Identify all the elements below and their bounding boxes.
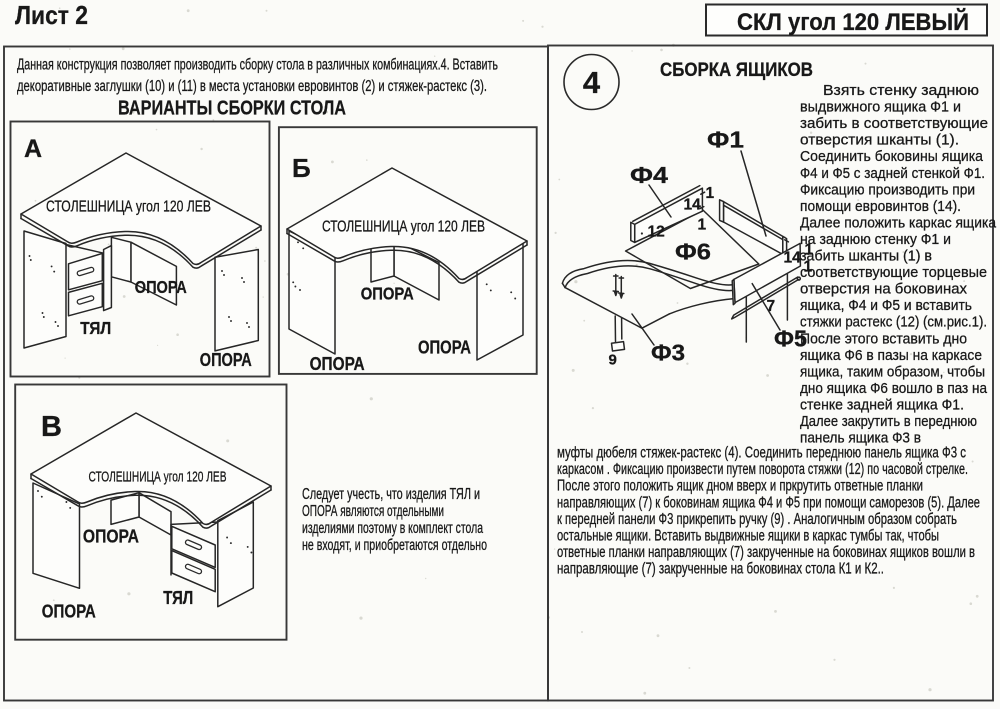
svg-text:выдвижного ящика Ф1 и: выдвижного ящика Ф1 и	[800, 99, 961, 116]
svg-text:муфты дюбеля стяжек-растекс (4: муфты дюбеля стяжек-растекс (4). Соедини…	[557, 445, 966, 462]
svg-text:СКЛ угол 120 ЛЕВЫЙ: СКЛ угол 120 ЛЕВЫЙ	[737, 8, 969, 36]
svg-text:ТЯЛ: ТЯЛ	[80, 318, 111, 338]
svg-text:ОПОРА: ОПОРА	[361, 284, 414, 304]
svg-text:соответствующие торцевые: соответствующие торцевые	[800, 264, 987, 281]
svg-text:направляющие (7) закрученные н: направляющие (7) закрученные на боковина…	[557, 561, 884, 578]
svg-text:Данная конструкция позволяет п: Данная конструкция позволяет производить…	[17, 57, 498, 74]
svg-text:14: 14	[684, 197, 702, 214]
svg-text:Далее закрутить в переднюю: Далее закрутить в переднюю	[800, 413, 977, 430]
svg-text:1: 1	[698, 217, 707, 234]
svg-text:ящика, таким образом, чтобы: ящика, таким образом, чтобы	[800, 363, 985, 380]
svg-text:Взять стенку заднюю: Взять стенку заднюю	[823, 82, 979, 99]
svg-text:СТОЛЕШНИЦА угол 120 ЛЕВ: СТОЛЕШНИЦА угол 120 ЛЕВ	[322, 219, 485, 236]
svg-text:ОПОРА: ОПОРА	[83, 527, 139, 547]
svg-text:После этого вставить дно: После этого вставить дно	[800, 330, 967, 347]
svg-text:изделиями поэтому в комплект с: изделиями поэтому в комплект стола	[302, 520, 483, 537]
svg-text:СТОЛЕШНИЦА угол 120 ЛЕВ: СТОЛЕШНИЦА угол 120 ЛЕВ	[46, 199, 211, 216]
svg-text:9: 9	[609, 352, 617, 369]
svg-text:4: 4	[583, 65, 601, 100]
svg-text:стяжки растекс (12) (см.рис.1): стяжки растекс (12) (см.рис.1).	[800, 314, 987, 331]
svg-text:Фиксацию производить при: Фиксацию производить при	[800, 181, 975, 198]
svg-text:ОПОРА: ОПОРА	[418, 338, 471, 358]
svg-text:ВАРИАНТЫ СБОРКИ СТОЛА: ВАРИАНТЫ СБОРКИ СТОЛА	[118, 97, 346, 120]
svg-text:забить шканты (1) в: забить шканты (1) в	[800, 248, 932, 265]
svg-text:Далее положить каркас ящика: Далее положить каркас ящика	[800, 214, 996, 231]
svg-text:14: 14	[784, 250, 802, 267]
svg-text:ОПОРА: ОПОРА	[135, 277, 187, 297]
svg-text:помощи евровинтов (14).: помощи евровинтов (14).	[800, 198, 961, 215]
svg-text:не входят, и приобретаются отд: не входят, и приобретаются отдельно	[302, 537, 487, 554]
svg-text:А: А	[24, 135, 42, 163]
svg-text:В: В	[41, 411, 62, 443]
svg-text:Б: Б	[292, 153, 311, 183]
svg-text:После этого положить ящик дном: После этого положить ящик дном вверх и п…	[557, 478, 923, 495]
svg-text:7: 7	[767, 298, 776, 315]
svg-text:ответные планки направляющих (: ответные планки направляющих (7) закруче…	[557, 544, 975, 561]
svg-text:ОПОРА являются отдельными: ОПОРА являются отдельными	[302, 503, 444, 520]
svg-text:Ф6: Ф6	[675, 239, 711, 265]
svg-text:стенке задней ящика Ф1.: стенке задней ящика Ф1.	[800, 396, 964, 413]
svg-text:Ф1: Ф1	[707, 127, 744, 153]
svg-text:декоративные заглушки (10) и: декоративные заглушки (10) и (11) в мест…	[17, 78, 487, 95]
svg-text:1: 1	[706, 185, 715, 202]
svg-text:к передней панели Ф3 прикрепит: к передней панели Ф3 прикрепить ручку (9…	[557, 511, 957, 528]
svg-text:отверстия на боковинах: отверстия на боковинах	[800, 281, 967, 298]
svg-text:на заднюю стенку Ф1 и: на заднюю стенку Ф1 и	[800, 231, 951, 248]
svg-text:Ф3: Ф3	[651, 340, 685, 366]
svg-text:отверстия шканты (1).: отверстия шканты (1).	[800, 132, 959, 149]
svg-text:ОПОРА: ОПОРА	[310, 354, 365, 374]
svg-text:СТОЛЕШНИЦА угол 120 ЛЕВ: СТОЛЕШНИЦА угол 120 ЛЕВ	[89, 470, 227, 486]
svg-text:12: 12	[648, 224, 665, 241]
svg-text:ОПОРА: ОПОРА	[200, 350, 252, 370]
svg-text:СБОРКА ЯЩИКОВ: СБОРКА ЯЩИКОВ	[660, 60, 813, 81]
svg-text:Соединить боковины ящика: Соединить боковины ящика	[800, 148, 984, 165]
svg-text:забить в соответствующие: забить в соответствующие	[800, 115, 988, 132]
svg-text:Ф4: Ф4	[630, 162, 668, 188]
svg-text:дно ящика Ф6 вошло в паз на: дно ящика Ф6 вошло в паз на	[800, 380, 987, 397]
svg-text:Следует учесть, что изделия Т: Следует учесть, что изделия ТЯЛ и	[302, 486, 480, 503]
svg-text:ящика Ф6 в пазы на каркасе: ящика Ф6 в пазы на каркасе	[800, 347, 982, 364]
svg-text:ОПОРА: ОПОРА	[42, 601, 96, 621]
svg-text:Ф4 и Ф5 с задней стенкой Ф1.: Ф4 и Ф5 с задней стенкой Ф1.	[800, 165, 985, 182]
svg-text:остальные ящики. Вставить выдв: остальные ящики. Вставить выдвижные ящик…	[557, 528, 939, 545]
svg-text:ТЯЛ: ТЯЛ	[163, 588, 193, 608]
svg-text:Лист 2: Лист 2	[15, 0, 88, 30]
svg-text:направляющих (7) к боковинам: направляющих (7) к боковинам ящика Ф4 и …	[557, 494, 980, 511]
svg-text:каркасом . Фиксацию произвести: каркасом . Фиксацию произвести путем пов…	[557, 461, 968, 478]
svg-text:ящика, Ф4 и Ф5 и вставить: ящика, Ф4 и Ф5 и вставить	[800, 297, 972, 314]
